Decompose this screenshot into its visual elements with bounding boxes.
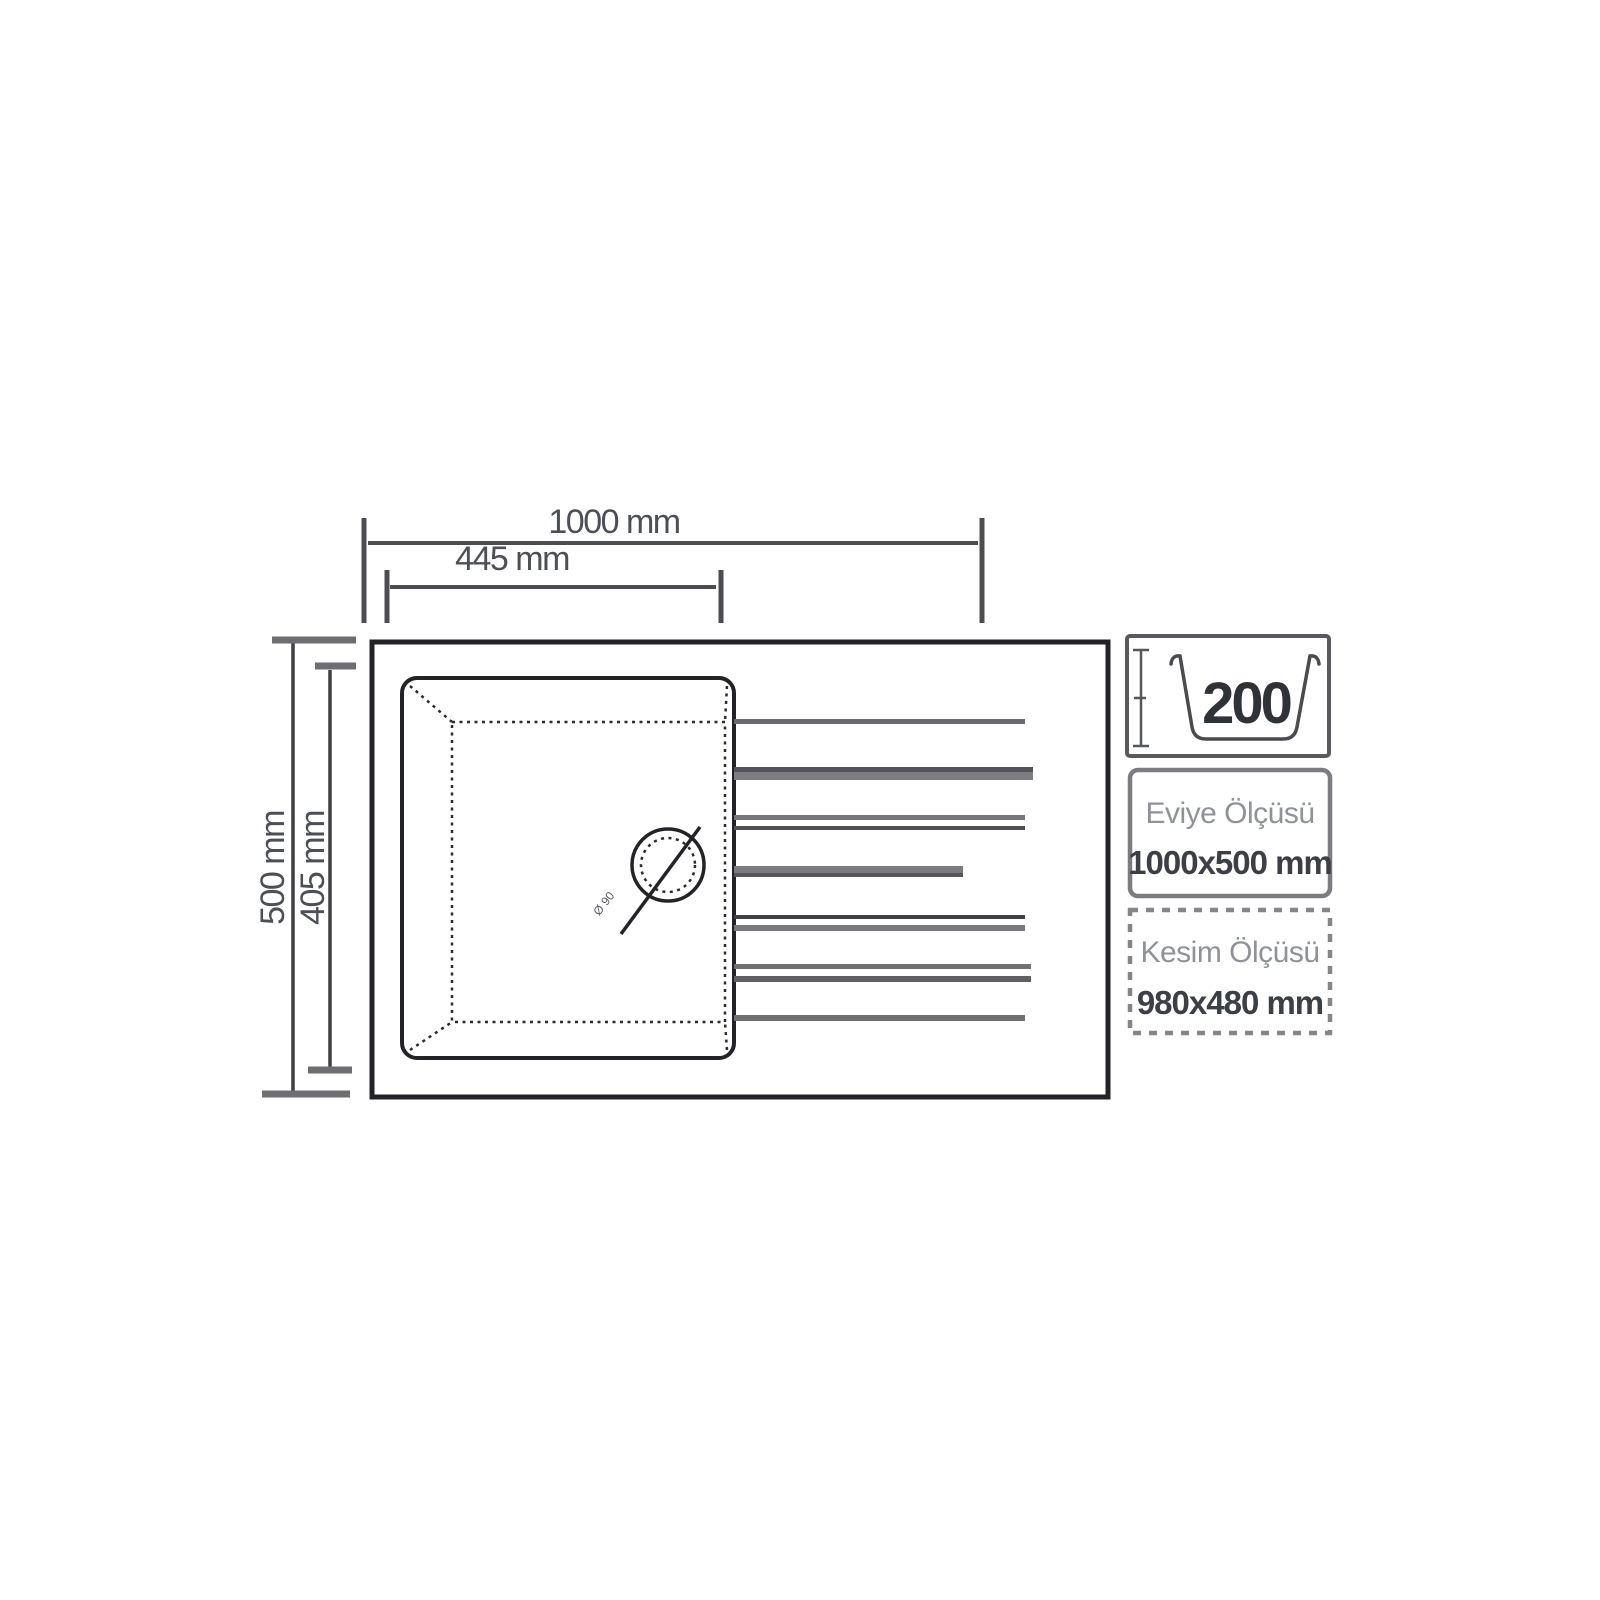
depth-value: 200 [1202, 671, 1291, 736]
drainboard-groove [734, 964, 1031, 969]
sink-size-box: Eviye Ölçüsü 1000x500 mm [1128, 770, 1332, 896]
cut-size-value: 980x480 mm [1137, 984, 1323, 1021]
drain-slash-line [621, 827, 700, 934]
overall-depth-label: 500 mm [254, 811, 292, 925]
drain-diameter-label: Ø 90 [590, 889, 617, 918]
drainboard-groove [734, 866, 963, 873]
drainboard-groove [734, 826, 1025, 830]
bowl-bottom-dotted-outline [452, 722, 725, 1022]
drainboard-groove [734, 915, 1025, 919]
drainboard-groove [734, 1015, 1025, 1021]
sink-spec-sheet: 1000 mm 445 mm 500 mm 405 mm [0, 0, 1600, 1600]
drain-hole-circle [632, 829, 704, 901]
drainboard-grooves [734, 719, 1033, 1021]
bowl-slope-line [725, 1022, 727, 1050]
bowl-slope-line [725, 686, 727, 722]
cut-size-box: Kesim Ölçüsü 980x480 mm [1130, 910, 1330, 1033]
sink-size-label: Eviye Ölçüsü [1145, 797, 1314, 830]
drainboard-groove [734, 925, 1025, 931]
drainboard-groove [734, 772, 1033, 780]
depth-box: 200 [1127, 636, 1329, 756]
bowl-depth-label: 405 mm [294, 811, 332, 925]
cut-size-label: Kesim Ölçüsü [1140, 936, 1319, 969]
bowl-depth-dimension: 405 mm [294, 666, 356, 1070]
drainboard-groove [734, 873, 963, 877]
overall-width-label: 1000 mm [548, 503, 679, 541]
drainboard-groove [734, 815, 1025, 820]
drainboard-groove [734, 976, 1031, 982]
bowl-slope-line [410, 686, 452, 722]
sink-technical-drawing: 1000 mm 445 mm 500 mm 405 mm [0, 0, 1600, 1600]
bowl-width-label: 445 mm [455, 540, 569, 578]
sink-size-value: 1000x500 mm [1128, 844, 1332, 881]
bowl-width-dimension: 445 mm [387, 540, 721, 623]
drainboard-groove [734, 767, 1033, 772]
bowl-slope-line [410, 1022, 452, 1050]
drainboard-groove [734, 719, 1025, 724]
drain-hole: Ø 90 [590, 827, 704, 934]
